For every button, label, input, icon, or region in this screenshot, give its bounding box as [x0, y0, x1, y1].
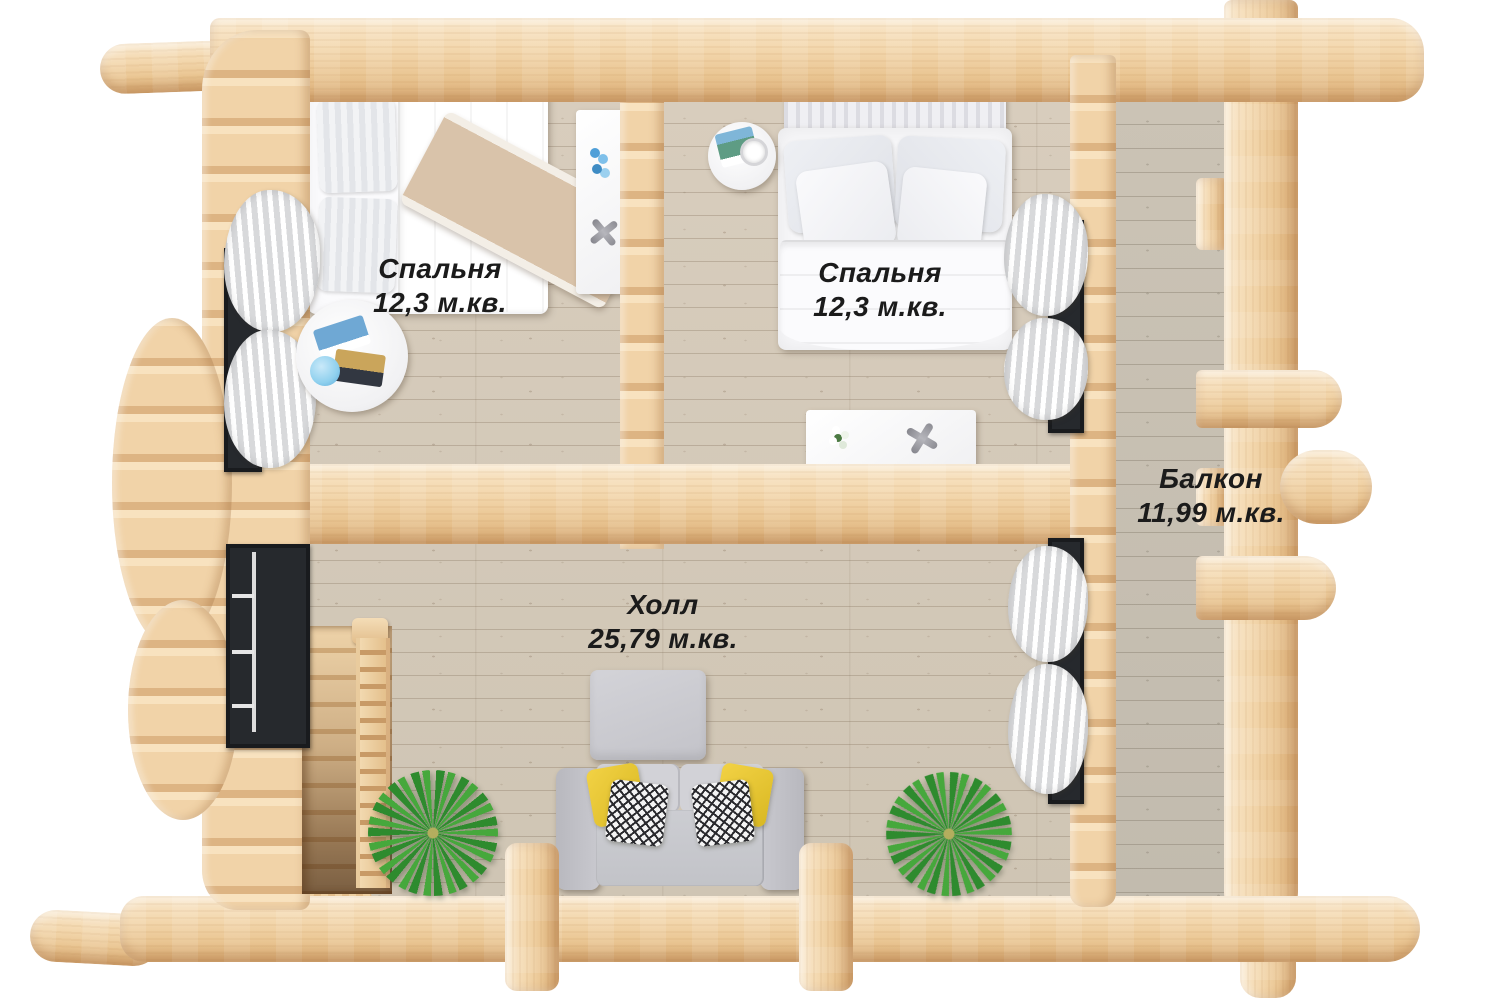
palm-plant	[368, 770, 498, 896]
bottom-post	[799, 843, 853, 991]
bottom-post	[505, 843, 559, 991]
curtain	[1004, 318, 1088, 420]
bottom-log-wall	[120, 896, 1420, 962]
starfish-decor	[903, 419, 941, 457]
room-area: 25,79 м.кв.	[553, 622, 773, 656]
book	[332, 349, 386, 388]
room-area: 12,3 м.кв.	[330, 286, 550, 320]
ottoman	[590, 670, 706, 760]
bedroom-left-label: Спальня 12,3 м.кв.	[330, 252, 550, 320]
window-hall	[226, 544, 310, 748]
bed-pillow	[316, 97, 397, 194]
balcony-railing-log	[1224, 0, 1298, 922]
vase-blue	[310, 356, 340, 386]
flower-sprig	[832, 426, 840, 434]
top-log-wall	[210, 18, 1424, 102]
protruding-log	[1196, 556, 1336, 620]
curtain	[1008, 546, 1088, 662]
window-rail	[232, 594, 254, 598]
left-log-wall-bulge	[128, 600, 238, 820]
sofa-pillow-zigzag	[690, 779, 755, 848]
sofa	[556, 760, 804, 896]
side-table-bedroom-right	[708, 122, 776, 190]
curtain	[1008, 664, 1088, 794]
room-name: Спальня	[330, 252, 550, 286]
left-log-wall-bulge	[112, 318, 232, 648]
floor-plan-render: Спальня 12,3 м.кв. Спальня 12,3 м.кв. Хо…	[0, 0, 1500, 1000]
room-area: 11,99 м.кв.	[1101, 496, 1321, 530]
bedroom-right-label: Спальня 12,3 м.кв.	[770, 256, 990, 324]
room-name: Балкон	[1101, 462, 1321, 496]
wall-bedrooms-hall	[192, 464, 1082, 544]
curtain	[1004, 194, 1088, 316]
console-table	[806, 410, 976, 472]
hall-label: Холл 25,79 м.кв.	[553, 588, 773, 656]
flower-vase-blue	[590, 148, 600, 158]
room-area: 12,3 м.кв.	[770, 290, 990, 324]
room-name: Спальня	[770, 256, 990, 290]
cup	[740, 138, 768, 166]
curtain	[224, 190, 320, 332]
room-name: Холл	[553, 588, 773, 622]
protruding-log	[1196, 370, 1342, 428]
balcony-label: Балкон 11,99 м.кв.	[1101, 462, 1321, 530]
window-rail	[232, 704, 254, 708]
sofa-pillow-zigzag	[604, 779, 669, 848]
window-rail	[232, 650, 254, 654]
starfish-decor	[585, 213, 623, 251]
